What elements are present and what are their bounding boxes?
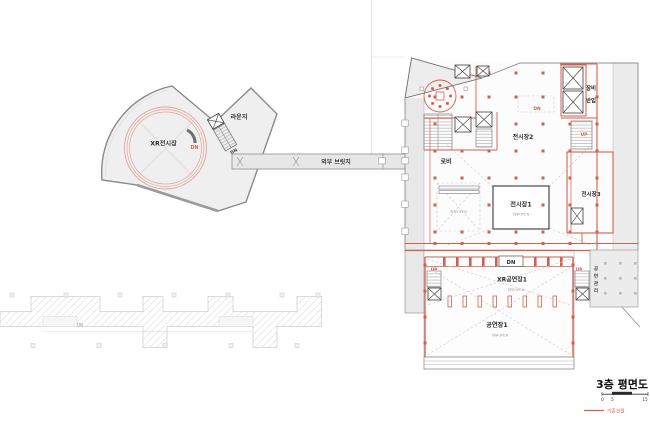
performance1-open-label: 하부OPEN [492, 333, 509, 338]
scale-tick-5: 5 [611, 397, 614, 402]
hall3-label: 전시장3 [581, 190, 600, 198]
floor-plan-canvas: DN XR전시장 DN 라운지 DN [0, 0, 650, 433]
stage-dn-label: DN [507, 260, 516, 266]
dn-mid-label: DN [533, 106, 541, 112]
drawing-title: 3층 평면도 [596, 377, 648, 391]
xr-wing: XR전시장 DN 라운지 DN [102, 86, 277, 211]
main-building: DN 장비 반입 UP 전시장3 하부OPEN [379, 58, 640, 369]
xr-hall-label: XR전시장 [150, 140, 177, 148]
xr-hall-dn-label: DN [191, 145, 199, 151]
scale-tick-0: 0 [601, 397, 604, 402]
perf-right-stair [575, 271, 589, 287]
performance1-label: 공연장1 [486, 321, 507, 329]
lounge-label: 라운지 [230, 113, 247, 121]
existing-building-outline: DN [0, 293, 322, 348]
scale-tick-15: 15 [642, 397, 648, 402]
xr-wing-outline [102, 86, 277, 211]
left-void-open-label: 하부OPEN [450, 209, 467, 214]
performance-wing: DN UP UP XR공연장1 하부OPEN 공연장1 하부OPEN 공연관리 [405, 250, 640, 369]
up-right-label: UP [576, 267, 584, 273]
scale-bar: 0 5 15 [601, 392, 648, 402]
existing-dn-label: DN [77, 323, 83, 328]
hall2-label: 전시장2 [513, 133, 534, 141]
xr-performance-open-label: 하부OPEN [508, 287, 525, 292]
hall1-label: 전시장1 [510, 201, 531, 209]
floor-plan-drawing: DN XR전시장 DN 라운지 DN [0, 0, 650, 433]
equipment-label-2: 반입 [586, 97, 596, 105]
perf-left-stair [427, 271, 441, 287]
title-block: 3층 평면도 0 5 15 기존건물 [584, 377, 648, 415]
wall-ticks [379, 120, 408, 234]
legend-existing-label: 기존건물 [607, 408, 625, 415]
up-left-label: UP [431, 267, 439, 273]
lobby-label: 로비 [440, 158, 451, 166]
legend: 기존건물 [584, 408, 625, 415]
bridge-label: 외부 브릿지 [321, 158, 351, 166]
equipment-label-1: 장비 [586, 84, 596, 92]
reference-lines [372, 0, 406, 155]
xr-performance-label: XR공연장1 [497, 276, 527, 284]
hall1-open-label: 하부OPEN [513, 212, 530, 217]
up-hall3-label: UP [581, 132, 589, 138]
stage-front [424, 357, 574, 369]
